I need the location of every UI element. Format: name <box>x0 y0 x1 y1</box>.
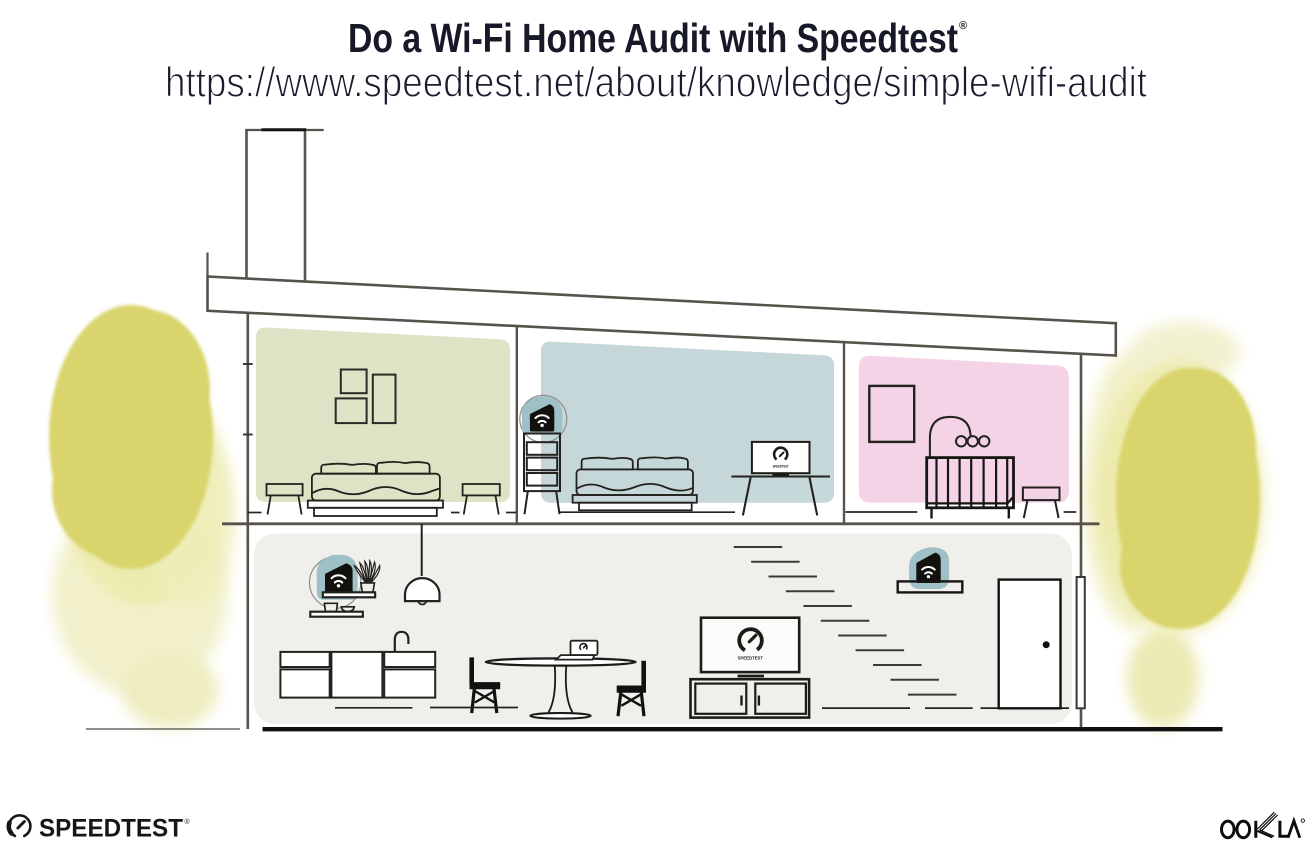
svg-text:https://www.speedtest.net/abou: https://www.speedtest.net/about/knowledg… <box>165 59 1147 106</box>
svg-text:SPEEDTEST: SPEEDTEST <box>39 816 183 843</box>
svg-text:Do a Wi-Fi Home Audit with Spe: Do a Wi-Fi Home Audit with Speedtest <box>348 15 958 61</box>
svg-text:SPEEDTEST: SPEEDTEST <box>773 464 790 468</box>
svg-text:®: ® <box>185 818 191 826</box>
svg-text:SPEEDTEST: SPEEDTEST <box>738 655 764 660</box>
svg-text:®: ® <box>959 20 967 32</box>
